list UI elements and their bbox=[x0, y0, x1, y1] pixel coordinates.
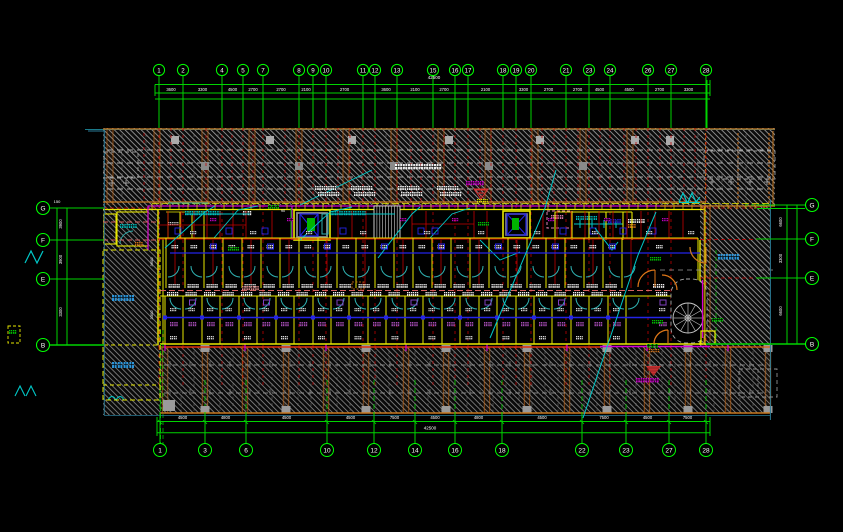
svg-text:14: 14 bbox=[411, 448, 419, 455]
svg-text:3900: 3900 bbox=[58, 219, 63, 229]
svg-text:10: 10 bbox=[323, 448, 331, 455]
svg-text:23: 23 bbox=[586, 67, 593, 74]
svg-text:F: F bbox=[41, 238, 45, 245]
svg-text:26: 26 bbox=[645, 67, 652, 74]
svg-text:23: 23 bbox=[622, 448, 630, 455]
svg-text:4500: 4500 bbox=[178, 415, 188, 420]
svg-text:3600: 3600 bbox=[149, 257, 154, 267]
svg-text:5: 5 bbox=[241, 67, 245, 74]
svg-text:B: B bbox=[810, 342, 814, 349]
svg-text:2700: 2700 bbox=[544, 87, 554, 92]
svg-text:12: 12 bbox=[372, 67, 379, 74]
svg-text:4500: 4500 bbox=[346, 415, 356, 420]
svg-text:10: 10 bbox=[323, 67, 330, 74]
svg-text:4800: 4800 bbox=[474, 415, 484, 420]
svg-text:2100: 2100 bbox=[301, 87, 311, 92]
svg-text:3300: 3300 bbox=[684, 87, 694, 92]
svg-text:4500: 4500 bbox=[537, 415, 547, 420]
svg-text:28: 28 bbox=[703, 67, 710, 74]
svg-text:2700: 2700 bbox=[248, 87, 258, 92]
svg-text:17: 17 bbox=[465, 67, 472, 74]
svg-text:150: 150 bbox=[54, 199, 61, 204]
svg-text:18: 18 bbox=[498, 448, 506, 455]
svg-text:G: G bbox=[40, 206, 45, 213]
svg-text:4500: 4500 bbox=[282, 415, 292, 420]
svg-text:4500: 4500 bbox=[228, 87, 238, 92]
svg-text:3300: 3300 bbox=[198, 87, 208, 92]
svg-text:2700: 2700 bbox=[655, 87, 665, 92]
svg-text:6: 6 bbox=[244, 448, 248, 455]
svg-text:27: 27 bbox=[665, 448, 673, 455]
svg-text:E: E bbox=[41, 277, 46, 284]
svg-text:2: 2 bbox=[181, 67, 185, 74]
svg-text:20: 20 bbox=[528, 67, 535, 74]
svg-text:19: 19 bbox=[513, 67, 520, 74]
svg-text:3900: 3900 bbox=[58, 254, 63, 264]
svg-text:28: 28 bbox=[702, 448, 710, 455]
svg-text:8: 8 bbox=[297, 67, 301, 74]
svg-text:27: 27 bbox=[668, 67, 675, 74]
svg-text:3300: 3300 bbox=[519, 87, 529, 92]
svg-text:2700: 2700 bbox=[439, 87, 449, 92]
svg-text:1: 1 bbox=[158, 448, 162, 455]
svg-text:16: 16 bbox=[451, 448, 459, 455]
svg-text:42500: 42500 bbox=[428, 75, 441, 80]
svg-text:B: B bbox=[41, 343, 45, 350]
svg-text:6600: 6600 bbox=[778, 217, 783, 227]
svg-text:3600: 3600 bbox=[381, 87, 391, 92]
svg-text:2700: 2700 bbox=[573, 87, 583, 92]
svg-text:13: 13 bbox=[394, 67, 401, 74]
svg-text:3300: 3300 bbox=[778, 253, 783, 263]
svg-text:2100: 2100 bbox=[481, 87, 491, 92]
svg-text:7: 7 bbox=[261, 67, 265, 74]
svg-text:2700: 2700 bbox=[276, 87, 286, 92]
svg-text:6600: 6600 bbox=[778, 306, 783, 316]
svg-text:2700: 2700 bbox=[340, 87, 350, 92]
svg-text:3300: 3300 bbox=[58, 307, 63, 317]
svg-text:3600: 3600 bbox=[166, 87, 176, 92]
svg-text:G: G bbox=[809, 203, 814, 210]
svg-text:1: 1 bbox=[157, 67, 161, 74]
svg-text:15: 15 bbox=[430, 67, 437, 74]
svg-text:E: E bbox=[810, 276, 815, 283]
svg-text:3300: 3300 bbox=[149, 310, 154, 320]
svg-text:7500: 7500 bbox=[390, 415, 400, 420]
svg-text:90: 90 bbox=[281, 209, 285, 213]
svg-text:4500: 4500 bbox=[595, 87, 605, 92]
svg-text:4500: 4500 bbox=[624, 87, 634, 92]
svg-text:F: F bbox=[810, 237, 814, 244]
svg-text:4800: 4800 bbox=[221, 415, 231, 420]
svg-text:9: 9 bbox=[311, 67, 315, 74]
svg-text:16: 16 bbox=[452, 67, 459, 74]
svg-text:7500: 7500 bbox=[599, 415, 609, 420]
svg-text:4: 4 bbox=[220, 67, 224, 74]
svg-text:4500: 4500 bbox=[643, 415, 653, 420]
svg-text:24: 24 bbox=[607, 67, 614, 74]
svg-text:4500: 4500 bbox=[430, 415, 440, 420]
svg-text:22: 22 bbox=[578, 448, 586, 455]
svg-text:18: 18 bbox=[500, 67, 507, 74]
svg-text:3: 3 bbox=[203, 448, 207, 455]
svg-text:7500: 7500 bbox=[683, 415, 693, 420]
svg-text:2100: 2100 bbox=[410, 87, 420, 92]
svg-text:21: 21 bbox=[563, 67, 570, 74]
svg-text:11: 11 bbox=[360, 67, 367, 74]
svg-text:12: 12 bbox=[370, 448, 378, 455]
svg-text:42500: 42500 bbox=[424, 426, 437, 431]
